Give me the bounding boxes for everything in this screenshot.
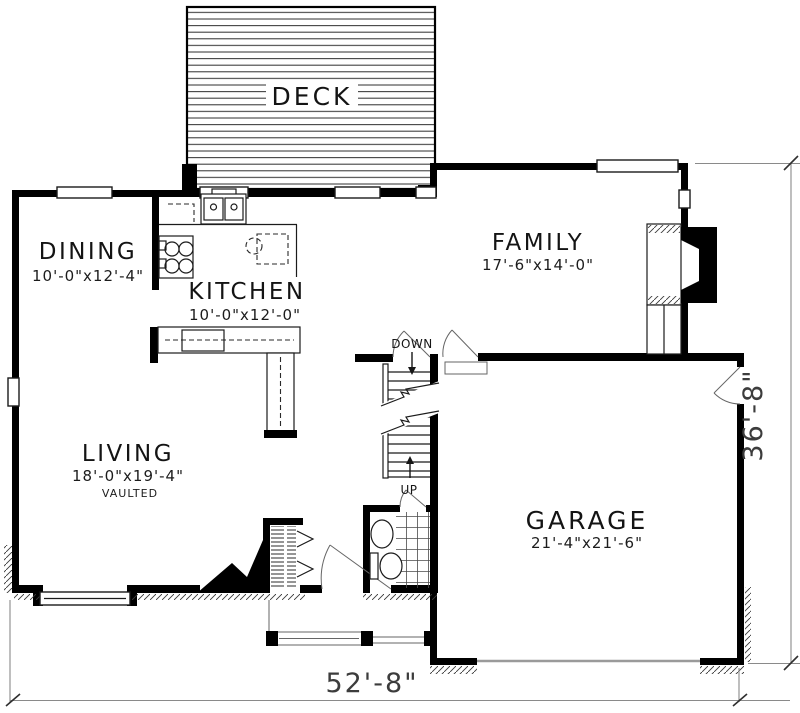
garage-label: GARAGE [526,506,649,535]
hatch-strip [363,594,437,600]
wall-counter-stub [150,327,158,363]
bath-tile-floor [396,512,430,588]
wall-family-garage [478,353,744,361]
garage-dims: 21'-4"x21'-6" [531,534,643,552]
wall-bath-left [363,505,370,593]
garage-entry-door [443,330,478,357]
overall-depth-dimension: 36'-8" [738,368,769,461]
closet-shelves [271,526,296,588]
half-bath [370,512,430,588]
wall-garage-right-upper [737,354,744,367]
wall-right-family-lower [681,303,688,356]
firebox [681,227,717,303]
garage-step [445,362,487,374]
wall-bath-top-b [426,505,437,512]
living-note: VAULTED [102,487,158,500]
family-side-window [679,190,690,208]
dining-label: DINING [39,239,138,265]
dining-dims: 10'-0"x12'-4" [32,267,144,285]
entry-closet [263,518,313,593]
family-dims: 17'-6"x14'-0" [482,256,594,274]
wall-bottom-entry [300,585,322,593]
deck-post [182,164,197,190]
hearth [647,224,681,305]
wall-garage-left [430,593,437,665]
closet-left-wall [263,518,270,593]
kitchen-label: KITCHEN [188,279,305,305]
stairs-down-label: DOWN [391,337,433,351]
closet-rod-arrow [297,561,313,577]
family-label: FAMILY [492,230,584,256]
hatch-strip [430,666,477,674]
front-porch [266,600,436,646]
hatch-strip [132,594,305,600]
wall-bottom-living-b [130,585,200,593]
wall-dining-kitchen [152,197,159,290]
garage-service-door [714,367,740,404]
wall-entry-angled [197,540,263,593]
kitchen-window [335,187,380,198]
porch-post [424,631,436,646]
deck-label: DECK [272,82,353,111]
hatch-strip [700,666,744,674]
hatch-strip [4,545,12,593]
porch-post [361,631,373,646]
toilet-tank [370,553,378,579]
kitchen-dims: 10'-0"x12'-0" [189,306,301,324]
living-side-window [8,378,19,406]
closet-rod-arrow [297,531,313,547]
family-top-window [597,160,678,172]
hatch-strip [14,594,40,600]
hearth-hatch-bottom [648,296,680,304]
hatch-strip [745,587,751,662]
kitchen-small-window [416,187,436,198]
stairs-up-label: UP [400,483,417,497]
pantry-dashed [168,204,194,222]
toilet-bowl [380,553,402,579]
refrigerator-circle [246,238,262,254]
hearth-hatch-top [648,225,680,233]
peninsula-end-wall [264,430,297,438]
porch-post [266,631,278,646]
overall-width-dimension: 52'-8" [325,668,418,699]
bath-sink [371,520,393,548]
wall-garage-bottom-left [430,658,477,665]
porch-rail [373,637,424,643]
up-arrow-head [406,456,414,464]
down-arrow-head [408,367,416,375]
living-dims: 18'-0"x19'-4" [72,467,184,485]
living-label: LIVING [82,441,174,467]
floor-plan-drawing: DECK DINING 10'-0"x12'-4" KITCHEN 10'-0"… [0,0,800,713]
wall-hall-stub [355,354,393,362]
floor-plan: DECK DINING 10'-0"x12'-4" KITCHEN 10'-0"… [0,0,800,713]
dining-window [57,187,112,198]
